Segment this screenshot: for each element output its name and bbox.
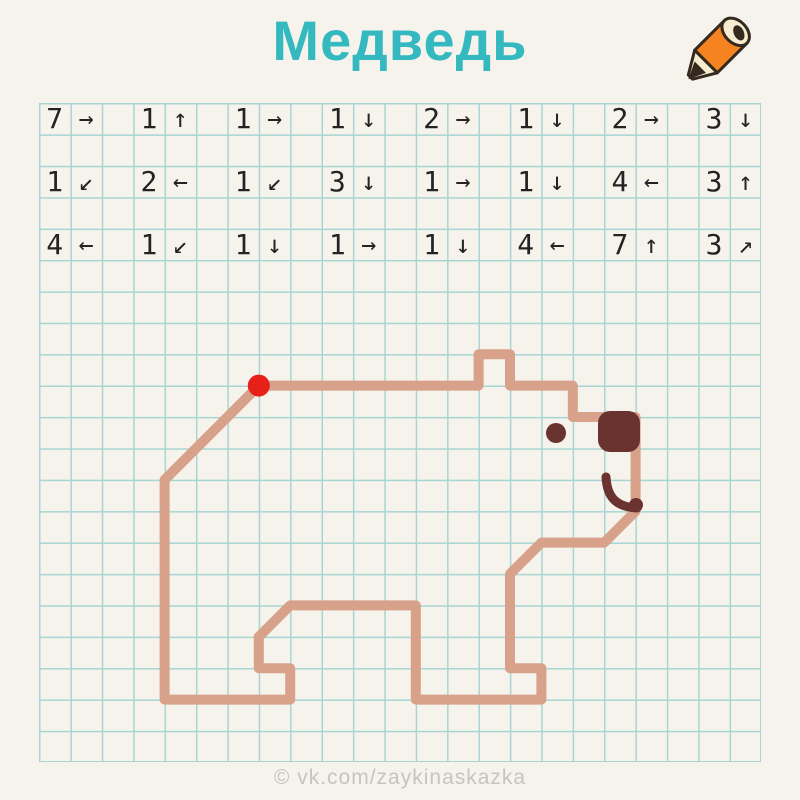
bear-drawing bbox=[0, 0, 800, 800]
bear-mouth-end bbox=[629, 498, 643, 512]
bear-outline-path bbox=[165, 354, 636, 699]
bear-nose bbox=[598, 411, 640, 452]
start-point-dot bbox=[248, 375, 270, 397]
worksheet-page: Медведь 7→1↑1→1↓2→1↓2→3↓1↙2←1↙3↓1→1↓4←3↑… bbox=[0, 0, 800, 800]
bear-eye bbox=[546, 423, 566, 443]
watermark: © vk.com/zaykinaskazka bbox=[0, 766, 800, 790]
